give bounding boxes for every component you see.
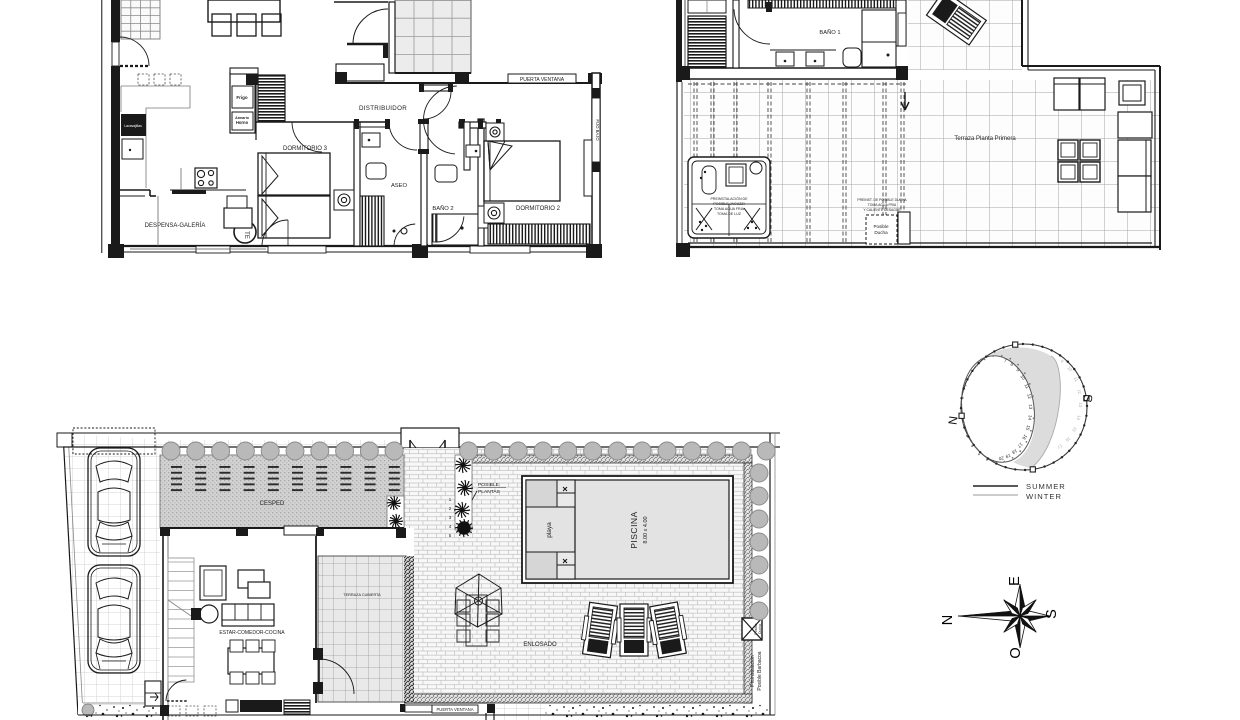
svg-text:O: O [1008, 647, 1024, 658]
svg-text:20: 20 [998, 456, 1004, 462]
svg-text:ESTAR-COMEDOR-COCINA: ESTAR-COMEDOR-COCINA [219, 630, 285, 636]
svg-text:13: 13 [1028, 404, 1033, 410]
svg-text:TERRAZA CUBIERTA: TERRAZA CUBIERTA [343, 593, 381, 597]
svg-text:7: 7 [1004, 358, 1008, 364]
svg-text:Ducha: Ducha [874, 230, 888, 235]
svg-text:TOMA AGUA FRIA: TOMA AGUA FRIA [868, 203, 897, 207]
svg-text:11: 11 [1073, 376, 1080, 383]
svg-text:E: E [1007, 576, 1023, 586]
svg-text:S: S [1044, 609, 1060, 619]
svg-text:Lavavajillas: Lavavajillas [124, 124, 142, 128]
svg-text:PUERTA VENTANA: PUERTA VENTANA [520, 77, 565, 83]
svg-text:BAÑO 2: BAÑO 2 [432, 205, 453, 212]
svg-text:9: 9 [1060, 358, 1065, 364]
svg-text:BAÑO 1: BAÑO 1 [819, 29, 840, 36]
svg-text:18: 18 [1011, 448, 1018, 455]
svg-text:ASEO: ASEO [391, 183, 408, 189]
svg-text:PISCINA: PISCINA [629, 511, 639, 549]
svg-text:TOMA AGUA FRIA: TOMA AGUA FRIA [714, 207, 745, 211]
svg-text:19: 19 [1005, 453, 1012, 459]
svg-text:ENLOSADO: ENLOSADO [523, 642, 557, 648]
svg-text:TOMA DE LUZ: TOMA DE LUZ [717, 212, 742, 216]
svg-text:Posible: Posible [873, 224, 889, 229]
svg-text:DISTRIBUIDOR: DISTRIBUIDOR [359, 105, 407, 112]
svg-text:15: 15 [1071, 426, 1078, 433]
svg-text:Ducha: Ducha [758, 624, 762, 634]
svg-text:N: N [946, 415, 961, 426]
svg-text:FIJO BAJO: FIJO BAJO [595, 119, 600, 141]
svg-text:12: 12 [1026, 393, 1032, 400]
svg-text:16: 16 [1021, 434, 1028, 441]
svg-text:Posible Barbacoa: Posible Barbacoa [757, 651, 763, 690]
svg-text:TE: TE [243, 231, 249, 239]
svg-text:PLANTAS: PLANTAS [478, 489, 501, 495]
svg-text:13: 13 [1078, 402, 1083, 408]
svg-text:Preinstalación: Preinstalación [750, 655, 756, 687]
svg-text:N: N [940, 615, 956, 625]
svg-text:DORMITORIO 2: DORMITORIO 2 [516, 206, 561, 212]
svg-text:17: 17 [1016, 442, 1023, 449]
svg-text:PREINST. DE POSIBLE DUCHA: PREINST. DE POSIBLE DUCHA [857, 198, 907, 202]
svg-text:POSIBLE JACUZZI: POSIBLE JACUZZI [713, 202, 744, 206]
svg-text:8.00 x 4.00: 8.00 x 4.00 [643, 516, 649, 543]
svg-text:Terraza Planta Primera: Terraza Planta Primera [954, 136, 1016, 142]
svg-text:playa: playa [546, 522, 553, 538]
svg-text:S: S [1081, 394, 1096, 404]
svg-text:Y CALIENTE DESAGÜE: Y CALIENTE DESAGÜE [863, 208, 901, 212]
svg-text:17: 17 [1056, 443, 1063, 450]
svg-text:14: 14 [1076, 415, 1082, 422]
svg-text:PREINSTALACIÓN DE: PREINSTALACIÓN DE [710, 196, 748, 201]
svg-text:14: 14 [1027, 415, 1033, 421]
svg-text:DORMITORIO 3: DORMITORIO 3 [283, 146, 328, 152]
svg-text:16: 16 [1064, 436, 1071, 443]
svg-text:SUMMER: SUMMER [1026, 482, 1066, 491]
svg-text:Horno: Horno [236, 120, 249, 125]
svg-text:Frigo: Frigo [236, 95, 247, 100]
svg-text:WINTER: WINTER [1026, 492, 1062, 501]
svg-text:DESPENSA-GALERÍA: DESPENSA-GALERÍA [145, 222, 206, 229]
svg-text:POSIBLE: POSIBLE [478, 482, 500, 488]
svg-text:PUERTA VENTANA: PUERTA VENTANA [437, 707, 474, 712]
